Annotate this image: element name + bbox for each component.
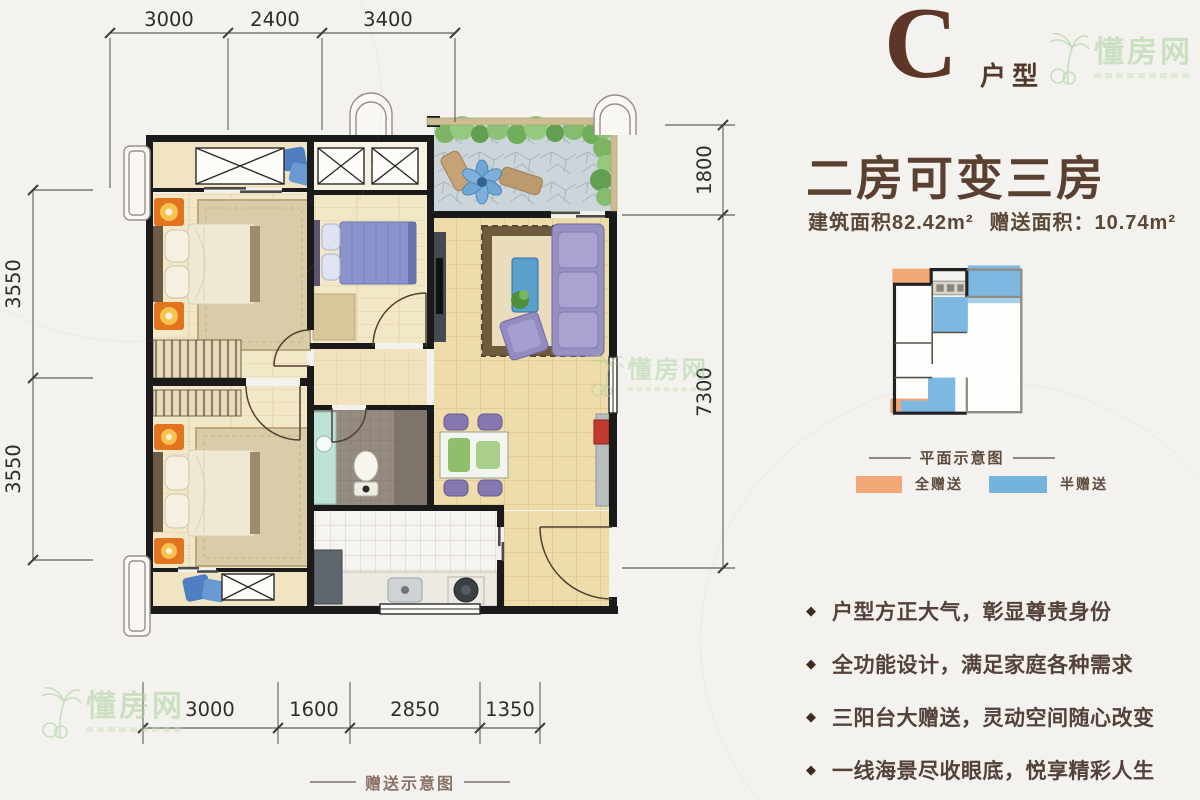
selling-point: ◆ 三阳台大赠送，灵动空间随心改变: [806, 690, 1196, 743]
bed: [188, 450, 256, 536]
bullet-diamond-icon: ◆: [806, 656, 816, 672]
legend-swatch-half-gift: [989, 476, 1047, 493]
area-info: 建筑面积82.42m²赠送面积：10.74m²: [808, 206, 1192, 235]
watermark-tagline-bar: [1094, 73, 1193, 78]
legend-label-full-gift: 全赠送: [915, 474, 963, 494]
toilet: [354, 451, 378, 481]
watermark-tagline-bar: [627, 387, 708, 391]
bullet-diamond-icon: ◆: [806, 762, 816, 778]
unit-type-suffix: 户型: [980, 56, 1044, 93]
dim-bottom-2: 1600: [289, 698, 339, 721]
selling-point-text: 三阳台大赠送，灵动空间随心改变: [832, 702, 1155, 732]
desk: [313, 294, 355, 340]
palm-tree-icon: [38, 684, 82, 740]
caption-rule: [869, 457, 911, 459]
watermark-top-right: 懂房网: [1046, 30, 1193, 86]
legend-swatch-full-gift: [856, 476, 902, 493]
watermark-text: 懂房网: [627, 359, 708, 384]
unit-type-letter: C: [884, 0, 958, 100]
selling-point-text: 全功能设计，满足家庭各种需求: [832, 649, 1133, 679]
selling-point: ◆ 全功能设计，满足家庭各种需求: [806, 637, 1196, 690]
caption-rule: [464, 781, 510, 783]
mini-schematic: [884, 264, 1036, 422]
garden-low-wall: [611, 125, 617, 211]
bullet-diamond-icon: ◆: [806, 709, 816, 725]
dim-bottom-3: 2850: [390, 698, 440, 721]
watermark-text: 懂房网: [86, 692, 185, 722]
plan-caption-text: 赠送示意图: [365, 770, 455, 794]
watermark-plan: 懂房网: [588, 352, 709, 398]
headline: 二房可变三房: [806, 140, 1106, 209]
bullet-diamond-icon: ◆: [806, 603, 816, 619]
wall-decor: [594, 420, 609, 444]
brochure-page: 3000 2400 3400 3550 3550 1800 7300 3000 …: [0, 0, 1200, 800]
dim-left-2: 3550: [2, 444, 25, 494]
tv: [436, 258, 443, 314]
legend: 全赠送 半赠送: [856, 474, 1108, 494]
selling-point-text: 一线海景尽收眼底，悦享精彩人生: [832, 755, 1155, 785]
dim-bottom-1: 3000: [185, 698, 235, 721]
mini-gift-full-area: [892, 269, 931, 285]
selling-point-text: 户型方正大气，彰显尊贵身份: [832, 596, 1112, 626]
dim-right-1: 1800: [693, 145, 716, 195]
mini-caption-text: 平面示意图: [919, 447, 1004, 468]
mini-caption: 平面示意图: [862, 447, 1062, 468]
watermark-tagline-bar: [86, 727, 185, 732]
mini-gift-half-area: [933, 297, 968, 333]
plan-caption: 赠送示意图: [280, 770, 540, 794]
gift-area: 赠送面积：10.74m²: [990, 212, 1177, 234]
entry-hall: [504, 511, 609, 606]
fridge: [314, 550, 342, 604]
caption-rule: [310, 781, 356, 783]
bed: [340, 222, 416, 284]
caption-rule: [1013, 457, 1055, 459]
selling-points: ◆ 户型方正大气，彰显尊贵身份 ◆ 全功能设计，满足家庭各种需求 ◆ 三阳台大赠…: [806, 584, 1196, 796]
watermark-text: 懂房网: [1094, 38, 1193, 68]
selling-point: ◆ 户型方正大气，彰显尊贵身份: [806, 584, 1196, 637]
garden-low-wall: [427, 118, 617, 125]
watermark-bottom-left: 懂房网: [38, 684, 185, 740]
legend-label-half-gift: 半赠送: [1060, 474, 1108, 494]
mini-schematic-svg: [884, 264, 1036, 422]
palm-tree-icon: [588, 352, 624, 398]
palm-tree-icon: [1046, 30, 1090, 86]
dim-top-3: 3400: [363, 8, 413, 31]
dim-bottom-4: 1350: [485, 698, 535, 721]
build-area: 建筑面积82.42m²: [808, 212, 974, 234]
corridor: [314, 349, 427, 405]
selling-point: ◆ 一线海景尽收眼底，悦享精彩人生: [806, 743, 1196, 796]
